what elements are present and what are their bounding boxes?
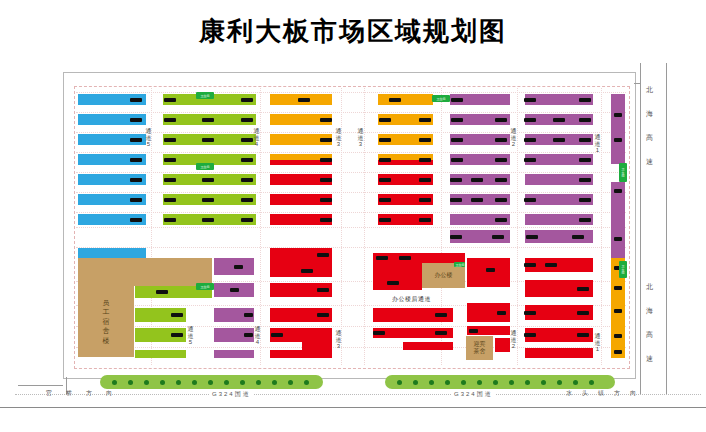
tree-dot (557, 380, 562, 385)
expressway-label: 北海高速 (646, 283, 653, 363)
tree-dot (144, 380, 149, 385)
stall-door-mark (156, 290, 168, 294)
aisle-label: 通道2 (509, 128, 518, 148)
tree-belt (100, 375, 323, 389)
stall-door-mark (419, 198, 431, 202)
stall-door-mark (614, 138, 622, 142)
tree-dot (256, 380, 261, 385)
tree-belt (385, 375, 615, 389)
expressway-label: 北海高速 (646, 86, 653, 166)
market-stall (378, 94, 433, 105)
stall-door-mark (579, 118, 591, 122)
restroom-badge: 卫生间 (619, 163, 627, 182)
stall-door-mark (435, 331, 447, 335)
market-stall (467, 303, 510, 322)
stall-door-mark (202, 138, 214, 142)
stall-door-mark (317, 288, 329, 292)
tree-dot (240, 380, 245, 385)
stall-door-mark (164, 178, 176, 182)
office-back-aisle-label: 办公楼后通道 (392, 295, 431, 304)
restroom-badge-label: 卫生间 (201, 285, 210, 288)
market-stall (525, 305, 593, 320)
market-stall (163, 174, 256, 185)
stall-door-mark (164, 198, 176, 202)
market-stall (378, 214, 433, 225)
stall-door-mark (164, 98, 176, 102)
stall-door-mark (469, 329, 478, 333)
expressway-line (640, 63, 641, 394)
stall-door-mark (579, 138, 591, 142)
tree-dot (160, 380, 165, 385)
stall-door-mark (320, 198, 332, 202)
market-stall (525, 174, 593, 185)
stall-door-mark (130, 118, 142, 122)
market-stall (270, 283, 332, 297)
stall-door-mark (614, 113, 622, 117)
stall-door-mark (451, 98, 463, 102)
market-stall (450, 194, 510, 205)
tree-dot (304, 380, 309, 385)
market-stall (378, 194, 433, 205)
stall-door-mark (497, 311, 506, 315)
market-stall (525, 114, 593, 125)
stall-door-mark (379, 158, 391, 162)
market-stall (270, 174, 332, 185)
stall-door-mark (317, 253, 329, 257)
market-stall (378, 114, 433, 125)
market-stall (450, 230, 510, 243)
market-stall (78, 154, 146, 165)
stall-door-mark (524, 311, 536, 315)
stall-door-mark (526, 235, 538, 239)
stall-door-mark (492, 235, 504, 239)
market-stall (78, 94, 146, 105)
tree-dot (541, 380, 546, 385)
market-stall (611, 182, 625, 258)
tree-dot (429, 380, 434, 385)
market-stall (270, 308, 332, 322)
market-stall (378, 154, 433, 165)
market-stall (302, 342, 332, 350)
aisle-label: 通道1 (593, 134, 602, 154)
stall-door-mark (577, 311, 589, 315)
market-stall (611, 94, 625, 164)
stall-door-mark (450, 235, 462, 239)
page-title: 康利大板市场区域规划图 (0, 14, 706, 49)
market-stall (135, 328, 186, 342)
stall-door-mark (577, 287, 589, 291)
building: 迎宾茶舍 (466, 336, 493, 360)
stall-door-mark (614, 334, 622, 338)
stall-door-mark (495, 178, 507, 182)
stall-door-mark (614, 309, 622, 313)
tree-dot (208, 380, 213, 385)
grid-guide-horizontal (76, 326, 626, 327)
market-stall (378, 174, 433, 185)
stall-door-mark (244, 313, 253, 317)
stall-door-mark (399, 256, 411, 260)
stall-door-mark (545, 263, 557, 267)
road-junction-line (18, 385, 63, 386)
stall-door-mark (524, 198, 536, 202)
grid-guide-vertical (441, 88, 442, 365)
stall-door-mark (495, 158, 507, 162)
tree-dot (509, 380, 514, 385)
market-stall (214, 308, 254, 322)
aisle-label: 通道3 (334, 330, 343, 350)
stall-door-mark (241, 138, 253, 142)
stall-door-mark (164, 118, 176, 122)
stall-door-mark (202, 218, 214, 222)
restroom-badge-label: 卫生间 (622, 265, 625, 275)
stall-door-mark (244, 333, 253, 337)
market-stall (270, 114, 332, 125)
restroom-badge-label: 卫生间 (201, 94, 210, 97)
tree-dot (192, 380, 197, 385)
stall-door-mark (320, 138, 332, 142)
stall-door-mark (419, 178, 431, 182)
stall-door-mark (164, 218, 176, 222)
stall-door-mark (471, 198, 483, 202)
tree-dot (493, 380, 498, 385)
market-stall (214, 350, 254, 358)
market-stall (525, 154, 593, 165)
market-stall (378, 134, 433, 145)
stall-door-mark (301, 269, 313, 273)
building-label: 办公楼 (435, 272, 453, 279)
tree-dot (224, 380, 229, 385)
stall-door-mark (579, 158, 591, 162)
tree-dot (112, 380, 117, 385)
grid-guide-horizontal (76, 247, 626, 248)
market-stall (495, 338, 510, 352)
tree-dot (445, 380, 450, 385)
stall-door-mark (271, 333, 283, 337)
stall-door-mark (234, 265, 243, 269)
stall-door-mark (450, 198, 462, 202)
restroom-badge: 卫生间 (196, 283, 214, 290)
market-stall (78, 214, 146, 225)
expressway-line (666, 63, 667, 394)
road-edge-line (0, 407, 706, 408)
stall-door-mark (202, 118, 214, 122)
stall-door-mark (241, 198, 253, 202)
tree-dot (288, 380, 293, 385)
stall-door-mark (451, 118, 463, 122)
market-stall (214, 328, 254, 342)
direction-label-left: 官桥方向 (46, 389, 126, 398)
grid-guide-horizontal (76, 212, 626, 213)
national-road-label: G324国道 (210, 390, 253, 399)
market-stall (135, 350, 186, 358)
building-label: 迎宾茶舍 (474, 341, 486, 356)
stall-door-mark (379, 118, 391, 122)
building: 员工宿舍楼 (78, 286, 134, 357)
market-stall (78, 134, 146, 145)
market-stall (450, 134, 510, 145)
market-stall (525, 134, 593, 145)
stall-door-mark (320, 218, 332, 222)
stall-door-mark (524, 333, 536, 337)
stall-door-mark (320, 158, 332, 162)
restroom-badge: 卫生间 (619, 261, 627, 278)
grid-guide-horizontal (76, 112, 626, 113)
aisle-label: 通道4 (252, 128, 261, 148)
stall-door-mark (379, 178, 391, 182)
market-stall (163, 194, 256, 205)
grid-guide-vertical (601, 88, 602, 365)
stall-door-mark (579, 198, 591, 202)
aisle-label: 通道5 (144, 128, 153, 148)
restroom-badge-label: 卫生间 (437, 97, 446, 100)
market-stall (78, 248, 146, 258)
tree-dot (461, 380, 466, 385)
market-stall (525, 328, 593, 342)
stall-door-mark (579, 98, 591, 102)
stall-door-mark (495, 138, 507, 142)
aisle-label: 通道4 (253, 326, 262, 346)
stall-door-mark (130, 98, 142, 102)
stall-door-mark (450, 178, 462, 182)
market-stall (270, 350, 332, 358)
grid-guide-horizontal (76, 192, 626, 193)
market-stall (467, 258, 510, 287)
market-stall (525, 214, 593, 225)
market-stall (78, 114, 146, 125)
expressway-top-connector (634, 83, 640, 84)
stall-door-mark (241, 118, 253, 122)
tree-dot (525, 380, 530, 385)
national-road-label: G324国道 (452, 390, 495, 399)
market-stall (373, 328, 453, 338)
tree-dot (272, 380, 277, 385)
stall-door-mark (320, 178, 332, 182)
restroom-badge: 卫生间 (196, 92, 214, 99)
market-stall (373, 263, 422, 290)
stall-door-mark (171, 333, 183, 337)
aisle-label: 通道2 (509, 330, 518, 350)
market-stall (270, 248, 332, 277)
stall-door-mark (373, 331, 385, 335)
stall-door-mark (524, 138, 536, 142)
stall-door-mark (579, 178, 591, 182)
tree-dot (573, 380, 578, 385)
stall-door-mark (241, 158, 253, 162)
stall-door-mark (379, 138, 391, 142)
stall-door-mark (202, 178, 214, 182)
aisle-label: 通道3 (334, 128, 343, 148)
grid-guide-horizontal (76, 152, 626, 153)
restroom-badge: 卫生间 (196, 163, 214, 170)
market-stall (450, 174, 510, 185)
market-stall (450, 94, 510, 105)
market-stall (450, 114, 510, 125)
stall-door-mark (451, 138, 463, 142)
stall-door-mark (130, 138, 142, 142)
stall-door-mark (524, 158, 536, 162)
market-planning-map: 康利大板市场区域规划图 员工宿舍楼办公楼迎宾茶舍 卫生间卫生间卫生间卫生间卫生间… (0, 0, 706, 432)
tree-dot (589, 380, 594, 385)
market-stall (270, 328, 332, 342)
direction-label-right: 水头镇方向 (566, 389, 646, 398)
market-stall (373, 253, 465, 263)
stall-door-mark (130, 178, 142, 182)
market-stall (163, 114, 256, 125)
aisle-label: 通道3 (356, 128, 365, 148)
stall-door-mark (320, 118, 332, 122)
tree-dot (128, 380, 133, 385)
market-stall (214, 283, 254, 297)
stall-door-mark (241, 178, 253, 182)
stall-door-mark (419, 118, 431, 122)
stall-door-mark (387, 281, 399, 285)
building (78, 258, 212, 286)
stall-door-mark (164, 158, 176, 162)
market-stall (163, 214, 256, 225)
tree-dot (397, 380, 402, 385)
stall-door-mark (130, 218, 142, 222)
stall-door-mark (495, 118, 507, 122)
stall-door-mark (614, 286, 622, 290)
stall-door-mark (379, 218, 391, 222)
market-stall (525, 258, 593, 272)
market-stall (450, 214, 510, 225)
stall-door-mark (495, 198, 507, 202)
restroom-badge-label: 卫生间 (201, 165, 210, 168)
market-stall (467, 326, 510, 335)
market-stall (214, 258, 254, 275)
restroom-badge-label: 卫生间 (622, 168, 625, 178)
stall-door-mark (171, 313, 183, 317)
stall-door-mark (376, 256, 388, 260)
stall-door-mark (471, 178, 483, 182)
tree-dot (413, 380, 418, 385)
grid-guide-horizontal (76, 92, 626, 93)
market-stall (163, 134, 256, 145)
stall-door-mark (389, 98, 401, 102)
stall-door-mark (553, 138, 565, 142)
market-stall (525, 348, 593, 358)
stall-door-mark (130, 198, 142, 202)
restroom-badge-label: 卫生间 (455, 263, 464, 266)
restroom-badge: 卫生间 (454, 262, 465, 267)
stall-door-mark (241, 98, 253, 102)
market-stall (270, 154, 332, 165)
aisle-label: 通道1 (593, 333, 602, 353)
stall-door-mark (524, 263, 536, 267)
stall-door-mark (614, 189, 622, 193)
market-stall (270, 214, 332, 225)
stall-door-mark (577, 333, 589, 337)
market-stall (270, 94, 332, 105)
market-stall (78, 174, 146, 185)
stall-door-mark (317, 313, 329, 317)
market-stall (270, 194, 332, 205)
stall-door-mark (130, 158, 142, 162)
tree-dot (477, 380, 482, 385)
stall-door-mark (572, 235, 584, 239)
stall-door-mark (579, 218, 591, 222)
market-stall (525, 194, 593, 205)
stall-door-mark (614, 350, 622, 354)
stall-door-mark (164, 138, 176, 142)
stall-door-mark (230, 288, 239, 292)
stall-door-mark (202, 198, 214, 202)
grid-guide-horizontal (76, 172, 626, 173)
stall-door-mark (553, 118, 565, 122)
stall-door-mark (495, 218, 507, 222)
stall-door-mark (524, 98, 536, 102)
market-stall (525, 280, 593, 297)
stall-door-mark (524, 118, 536, 122)
stall-door-mark (298, 98, 310, 102)
stall-door-mark (241, 218, 253, 222)
stall-door-mark (614, 237, 622, 241)
stall-door-mark (451, 158, 463, 162)
market-stall (450, 154, 510, 165)
market-stall (403, 342, 453, 350)
stall-door-mark (419, 218, 431, 222)
aisle-label: 通道5 (186, 326, 195, 346)
stall-door-mark (379, 198, 391, 202)
market-stall (135, 308, 186, 322)
market-stall (270, 134, 332, 145)
restroom-badge: 卫生间 (432, 95, 450, 102)
grid-guide-horizontal (76, 132, 626, 133)
stall-door-mark (419, 158, 431, 162)
stall-door-mark (419, 138, 431, 142)
stall-door-mark (435, 313, 447, 317)
stall-door-mark (486, 268, 495, 272)
market-stall (78, 194, 146, 205)
market-stall (525, 94, 593, 105)
market-stall (373, 308, 453, 322)
tree-dot (176, 380, 181, 385)
building-label: 员工宿舍楼 (103, 298, 110, 346)
grid-guide-horizontal (76, 227, 626, 228)
market-stall (525, 230, 593, 243)
